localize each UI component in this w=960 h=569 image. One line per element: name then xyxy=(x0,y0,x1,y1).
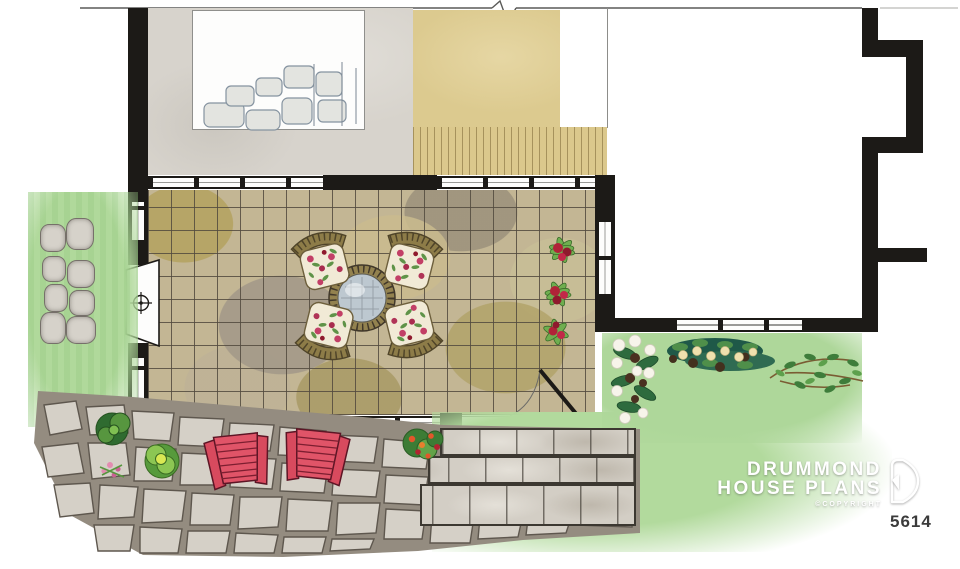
adirondack-chair xyxy=(198,420,277,499)
stone-step xyxy=(440,428,636,456)
stepping-stone xyxy=(42,256,66,282)
wood-deck-boards xyxy=(413,127,607,175)
stepping-stone xyxy=(40,312,66,344)
floor-plan-canvas: DRUMMOND HOUSE PLANS ©COPYRIGHT 5614 xyxy=(0,0,960,569)
stepping-stone xyxy=(66,316,96,344)
garden-bed xyxy=(605,333,885,445)
stepping-stone xyxy=(69,290,95,316)
stone-step xyxy=(420,484,636,526)
stone-step xyxy=(428,456,636,484)
porch-top-wall xyxy=(323,175,437,190)
brand-name-line2: HOUSE PLANS xyxy=(700,479,882,498)
screen-window xyxy=(597,218,613,298)
right-wall-segment xyxy=(862,137,923,153)
copyright-label: ©COPYRIGHT xyxy=(700,501,882,508)
wood-deck xyxy=(413,10,560,128)
wall-edge-line xyxy=(607,8,608,128)
stepping-stone xyxy=(66,218,94,250)
brand-logo: DRUMMOND HOUSE PLANS ©COPYRIGHT xyxy=(700,460,882,508)
stone-stair-sketch xyxy=(196,58,421,178)
brand-name-line1: DRUMMOND xyxy=(700,460,882,479)
shrub-cluster xyxy=(86,403,196,493)
screen-window xyxy=(148,176,323,189)
right-wall-segment xyxy=(862,153,878,263)
brand-d-icon xyxy=(886,456,922,508)
right-wall-segment xyxy=(862,40,923,57)
adirondack-chair xyxy=(276,416,355,495)
stepping-stone xyxy=(67,260,95,288)
plan-number: 5614 xyxy=(890,512,950,532)
screen-window xyxy=(437,176,595,189)
right-wall-segment xyxy=(862,248,927,262)
flower-pot xyxy=(393,421,455,475)
stepping-stone xyxy=(44,284,68,312)
stepping-stone xyxy=(40,224,66,252)
potted-flowers xyxy=(532,232,594,350)
window xyxy=(672,318,802,332)
